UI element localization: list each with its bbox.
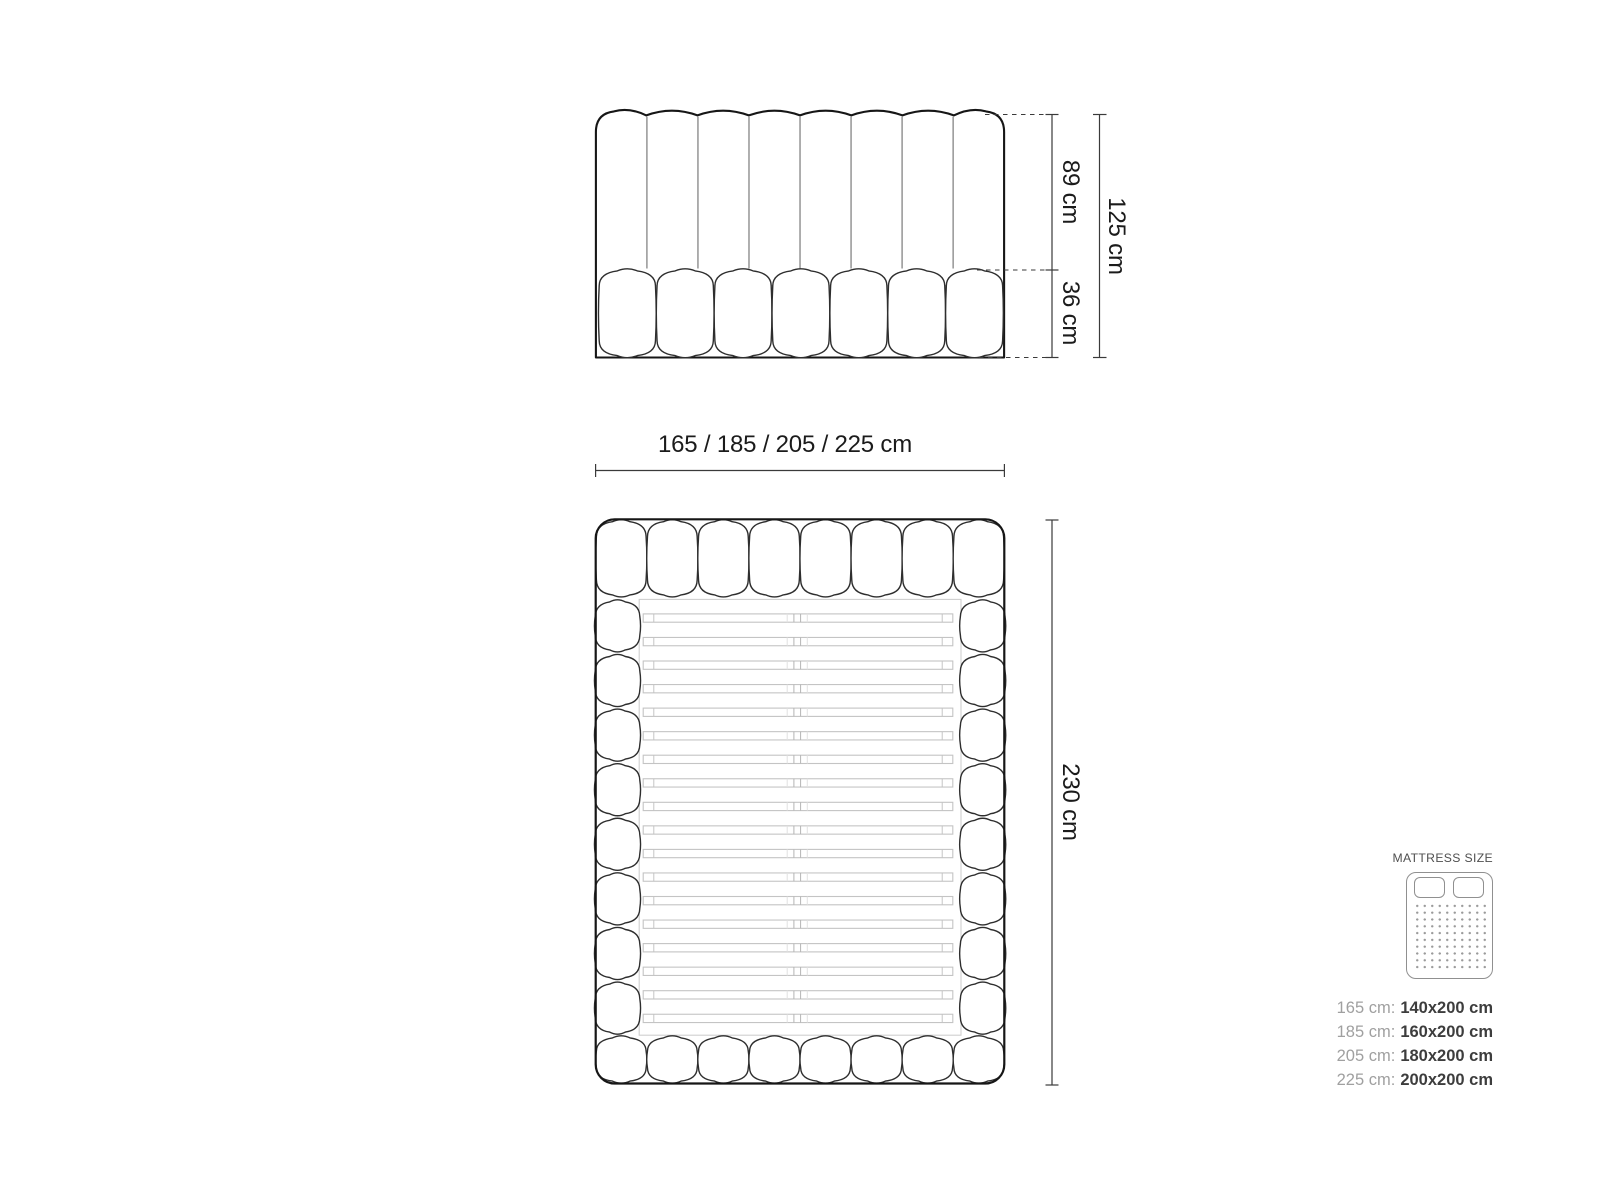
slat [643,755,953,763]
border-segment-right [960,873,1006,925]
border-segment-left [594,764,640,816]
size-row: 165 cm:140x200 cm [1300,996,1493,1020]
front-cushion [772,269,830,358]
border-segment-top [902,520,953,597]
size-row-label: 205 cm: [1337,1047,1396,1065]
size-row-label: 165 cm: [1337,999,1396,1017]
border-segment-bottom [851,1036,902,1083]
front-cushion [598,269,656,358]
slat [643,849,953,857]
slat [643,732,953,740]
size-row-value: 180x200 cm [1400,1047,1493,1065]
border-segment-left [594,600,640,652]
size-row-value: 160x200 cm [1400,1023,1493,1041]
slat [643,637,953,645]
size-row-label: 225 cm: [1337,1071,1396,1089]
slat [643,967,953,975]
border-segment-right [960,709,1006,761]
size-row: 205 cm:180x200 cm [1300,1044,1493,1068]
border-segment-left [594,927,640,979]
border-segment-bottom [800,1036,851,1083]
dim-label-width-options: 165 / 185 / 205 / 225 cm [585,433,985,457]
slat [643,920,953,928]
slat [643,873,953,881]
dim-label-height-lower: 36 cm [1058,281,1082,345]
border-segment-bottom [902,1036,953,1083]
slat [643,802,953,810]
slat [643,708,953,716]
slat [643,826,953,834]
border-segment-top [953,520,1004,597]
slat [643,685,953,693]
border-segment-bottom [647,1036,698,1083]
front-cushion [714,269,772,358]
size-row-label: 185 cm: [1337,1023,1396,1041]
bed-dimension-diagram: 89 cm 36 cm 125 cm 165 / 185 / 205 / 225… [0,0,1600,1200]
mattress-size-title: MATTRESS SIZE [1300,851,1493,865]
border-segment-right [960,818,1006,870]
dim-label-height-upper: 89 cm [1058,160,1082,224]
bed-front-view [596,110,1004,358]
dim-label-height-total: 125 cm [1104,197,1128,275]
border-segment-top [698,520,749,597]
front-cushion [888,269,946,358]
border-segment-left [594,818,640,870]
border-segment-right [960,927,1006,979]
pillow-icon [1414,877,1445,898]
dim-label-length: 230 cm [1058,763,1082,841]
border-segment-top [596,520,647,597]
border-segment-top [851,520,902,597]
border-segment-bottom [953,1036,1004,1083]
border-segment-top [749,520,800,597]
bed-top-view [594,519,1005,1083]
size-row-value: 140x200 cm [1400,999,1493,1017]
slat [643,944,953,952]
slat [643,661,953,669]
border-segment-left [594,709,640,761]
border-segment-right [960,764,1006,816]
front-cushion [656,269,714,358]
mattress-dots-pattern [1412,901,1488,969]
border-segment-right [960,600,1006,652]
border-segment-top [647,520,698,597]
slat [643,1014,953,1022]
mattress-top-icon [1406,872,1493,979]
slat [643,897,953,905]
size-row-value: 200x200 cm [1400,1071,1493,1089]
mattress-front-cushions [598,269,1003,358]
border-segment-left [594,654,640,706]
slat [643,779,953,787]
border-segment-left [594,982,640,1034]
front-cushion [830,269,888,358]
mattress-size-legend: MATTRESS SIZE 165 cm:140x200 cm 185 cm:1… [1300,851,1493,1092]
size-row: 185 cm:160x200 cm [1300,1020,1493,1044]
border-segment-top [800,520,851,597]
pillow-icon [1453,877,1484,898]
border-segment-right [960,654,1006,706]
border-segment-right [960,982,1006,1034]
front-cushion [946,269,1004,358]
slat [643,614,953,622]
border-segment-bottom [698,1036,749,1083]
size-row: 225 cm:200x200 cm [1300,1068,1493,1092]
mattress-size-table: 165 cm:140x200 cm 185 cm:160x200 cm 205 … [1300,996,1493,1092]
border-segment-left [594,873,640,925]
border-segment-bottom [596,1036,647,1083]
slat [643,991,953,999]
border-segment-bottom [749,1036,800,1083]
